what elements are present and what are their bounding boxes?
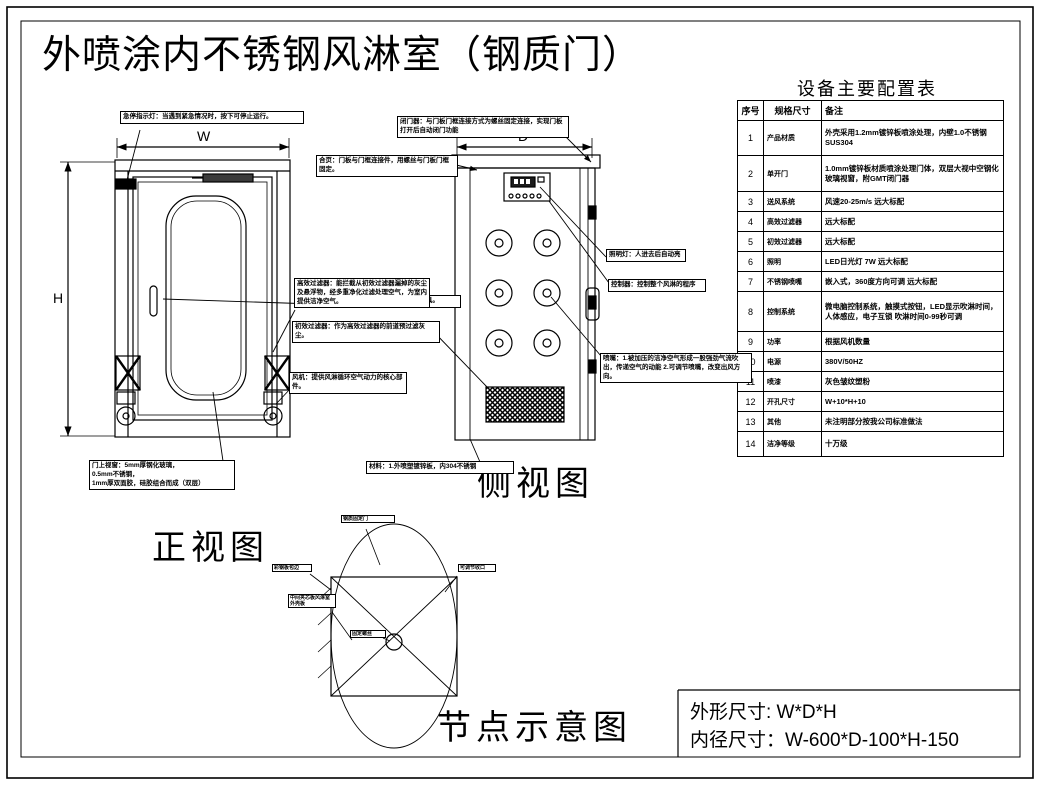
- row-note: 根据风机数量: [822, 332, 1004, 352]
- table-row: 1产品材质外壳采用1.2mm镀锌板喷涂处理，内壁1.0不锈钢SUS304: [738, 121, 1004, 156]
- row-no: 7: [738, 272, 764, 292]
- row-item: 洁净等级: [764, 432, 822, 457]
- row-note: 微电脑控制系统，触摸式按钮，LED显示吹淋时间，人体感应，电子互锁 吹淋时间0-…: [822, 292, 1004, 332]
- row-note: 远大标配: [822, 212, 1004, 232]
- table-row: 9功率根据风机数量: [738, 332, 1004, 352]
- callout-hinge: 合页：门板与门框连接件，用螺丝与门板门框固定。: [316, 155, 458, 177]
- row-item: 单开门: [764, 156, 822, 192]
- row-item: 喷漆: [764, 372, 822, 392]
- row-note: 外壳采用1.2mm镀锌板喷涂处理，内壁1.0不锈钢SUS304: [822, 121, 1004, 156]
- overall-size-note: 外形尺寸: W*D*H: [690, 697, 837, 724]
- table-row: 10电源380V/50HZ: [738, 352, 1004, 372]
- callout-door-window: 门上视窗：5mm厚钢化玻璃， 0.5mm不锈钢， 1mm厚双面胶，硅胶组合而成（…: [89, 460, 235, 490]
- row-item: 电源: [764, 352, 822, 372]
- col-header-note: 备注: [822, 101, 1004, 121]
- row-note: 风速20-25m/s 远大标配: [822, 192, 1004, 212]
- callout-controller: 控制器：控制整个风淋的程序: [608, 279, 706, 292]
- row-item: 其他: [764, 412, 822, 432]
- table-row: 13其他未注明部分按我公司标准做法: [738, 412, 1004, 432]
- row-note: 未注明部分按我公司标准做法: [822, 412, 1004, 432]
- row-note: 远大标配: [822, 232, 1004, 252]
- dim-width-label: W: [197, 128, 210, 144]
- callout-emergency-stop: 急停指示灯：当遇到紧急情况时，按下可停止运行。: [120, 111, 304, 124]
- node-label-adjust-joint: 可调节收口: [458, 564, 496, 572]
- table-row: 5初效过滤器远大标配: [738, 232, 1004, 252]
- config-table-header-row: 序号 规格尺寸 备注: [738, 101, 1004, 121]
- row-item: 送风系统: [764, 192, 822, 212]
- config-table: 序号 规格尺寸 备注 1产品材质外壳采用1.2mm镀锌板喷涂处理，内壁1.0不锈…: [737, 100, 1004, 457]
- callout-door-closer: 闭门器：与门板门框连接方式为螺丝固定连接，实现门板打开后自动闭门功能: [397, 116, 569, 138]
- col-header-no: 序号: [738, 101, 764, 121]
- inner-size-note: 内径尺寸：W-600*D-100*H-150: [690, 725, 959, 752]
- row-no: 4: [738, 212, 764, 232]
- row-no: 12: [738, 392, 764, 412]
- row-no: 1: [738, 121, 764, 156]
- row-no: 13: [738, 412, 764, 432]
- row-item: 产品材质: [764, 121, 822, 156]
- row-note: 十万级: [822, 432, 1004, 457]
- row-item: 不锈钢喷嘴: [764, 272, 822, 292]
- row-item: 控制系统: [764, 292, 822, 332]
- col-header-spec: 规格尺寸: [764, 101, 822, 121]
- callout-pre-filter: 初效过滤器：作为高效过滤器的前道预过滤灰尘。: [292, 321, 440, 343]
- callout-fan: 风机：提供风淋循环空气动力的核心部件。: [289, 372, 407, 394]
- table-row: 11喷漆灰色皱纹塑粉: [738, 372, 1004, 392]
- row-no: 6: [738, 252, 764, 272]
- node-view-label: 节点示意图: [437, 700, 632, 749]
- front-view-label: 正视图: [152, 520, 269, 569]
- row-no: 8: [738, 292, 764, 332]
- table-row: 6照明LED日光灯 7W 远大标配: [738, 252, 1004, 272]
- callout-material: 材料：1.外喷塑镀锌板，内304不锈钢: [366, 461, 514, 474]
- row-no: 3: [738, 192, 764, 212]
- callout-light: 照明灯：人进去后自动亮: [606, 249, 686, 262]
- row-no: 9: [738, 332, 764, 352]
- table-row: 2单开门1.0mm镀锌板材质喷涂处理门体，双层大视中空钢化玻璃视窗，附GMT闭门…: [738, 156, 1004, 192]
- row-note: LED日光灯 7W 远大标配: [822, 252, 1004, 272]
- node-label-fixing-screw: 固定螺丝: [350, 630, 386, 638]
- table-row: 4高效过滤器远大标配: [738, 212, 1004, 232]
- row-item: 高效过滤器: [764, 212, 822, 232]
- table-row: 8控制系统微电脑控制系统，触摸式按钮，LED显示吹淋时间，人体感应，电子互锁 吹…: [738, 292, 1004, 332]
- row-no: 5: [738, 232, 764, 252]
- node-label-fixed-door: 钢质固定门: [341, 515, 395, 523]
- row-item: 功率: [764, 332, 822, 352]
- row-item: 初效过滤器: [764, 232, 822, 252]
- table-row: 12开孔尺寸W+10*H+10: [738, 392, 1004, 412]
- config-table-title: 设备主要配置表: [797, 75, 937, 101]
- row-no: 2: [738, 156, 764, 192]
- drawing-sheet: 外喷涂内不锈钢风淋室（钢质门） W H D 正视图 侧视图 节点示意图 急停指示…: [0, 0, 1040, 785]
- row-no: 14: [738, 432, 764, 457]
- dim-height-label: H: [53, 290, 63, 306]
- sheet-title: 外喷涂内不锈钢风淋室（钢质门）: [42, 24, 642, 80]
- table-row: 14洁净等级十万级: [738, 432, 1004, 457]
- row-item: 开孔尺寸: [764, 392, 822, 412]
- callout-hepa-filter: 高效过滤器：能拦截从初效过滤器漏掉的灰尘及悬浮物，经多重净化过滤处理空气，为室内…: [294, 278, 430, 308]
- node-label-edge-trim: 彩钢板包边: [272, 564, 312, 572]
- node-label-panel-shell: 中间夹芯板风淋室外壳板: [288, 594, 336, 608]
- table-row: 7不锈钢喷嘴嵌入式，360度方向可调 远大标配: [738, 272, 1004, 292]
- row-item: 照明: [764, 252, 822, 272]
- row-note: 嵌入式，360度方向可调 远大标配: [822, 272, 1004, 292]
- callout-nozzle: 喷嘴：1.被加压的洁净空气形成一股强劲气流吹出，传递空气的动能 2.可调节喷嘴，…: [600, 353, 752, 383]
- row-note: 灰色皱纹塑粉: [822, 372, 1004, 392]
- table-row: 3送风系统风速20-25m/s 远大标配: [738, 192, 1004, 212]
- row-note: 380V/50HZ: [822, 352, 1004, 372]
- row-note: W+10*H+10: [822, 392, 1004, 412]
- row-note: 1.0mm镀锌板材质喷涂处理门体，双层大视中空钢化玻璃视窗，附GMT闭门器: [822, 156, 1004, 192]
